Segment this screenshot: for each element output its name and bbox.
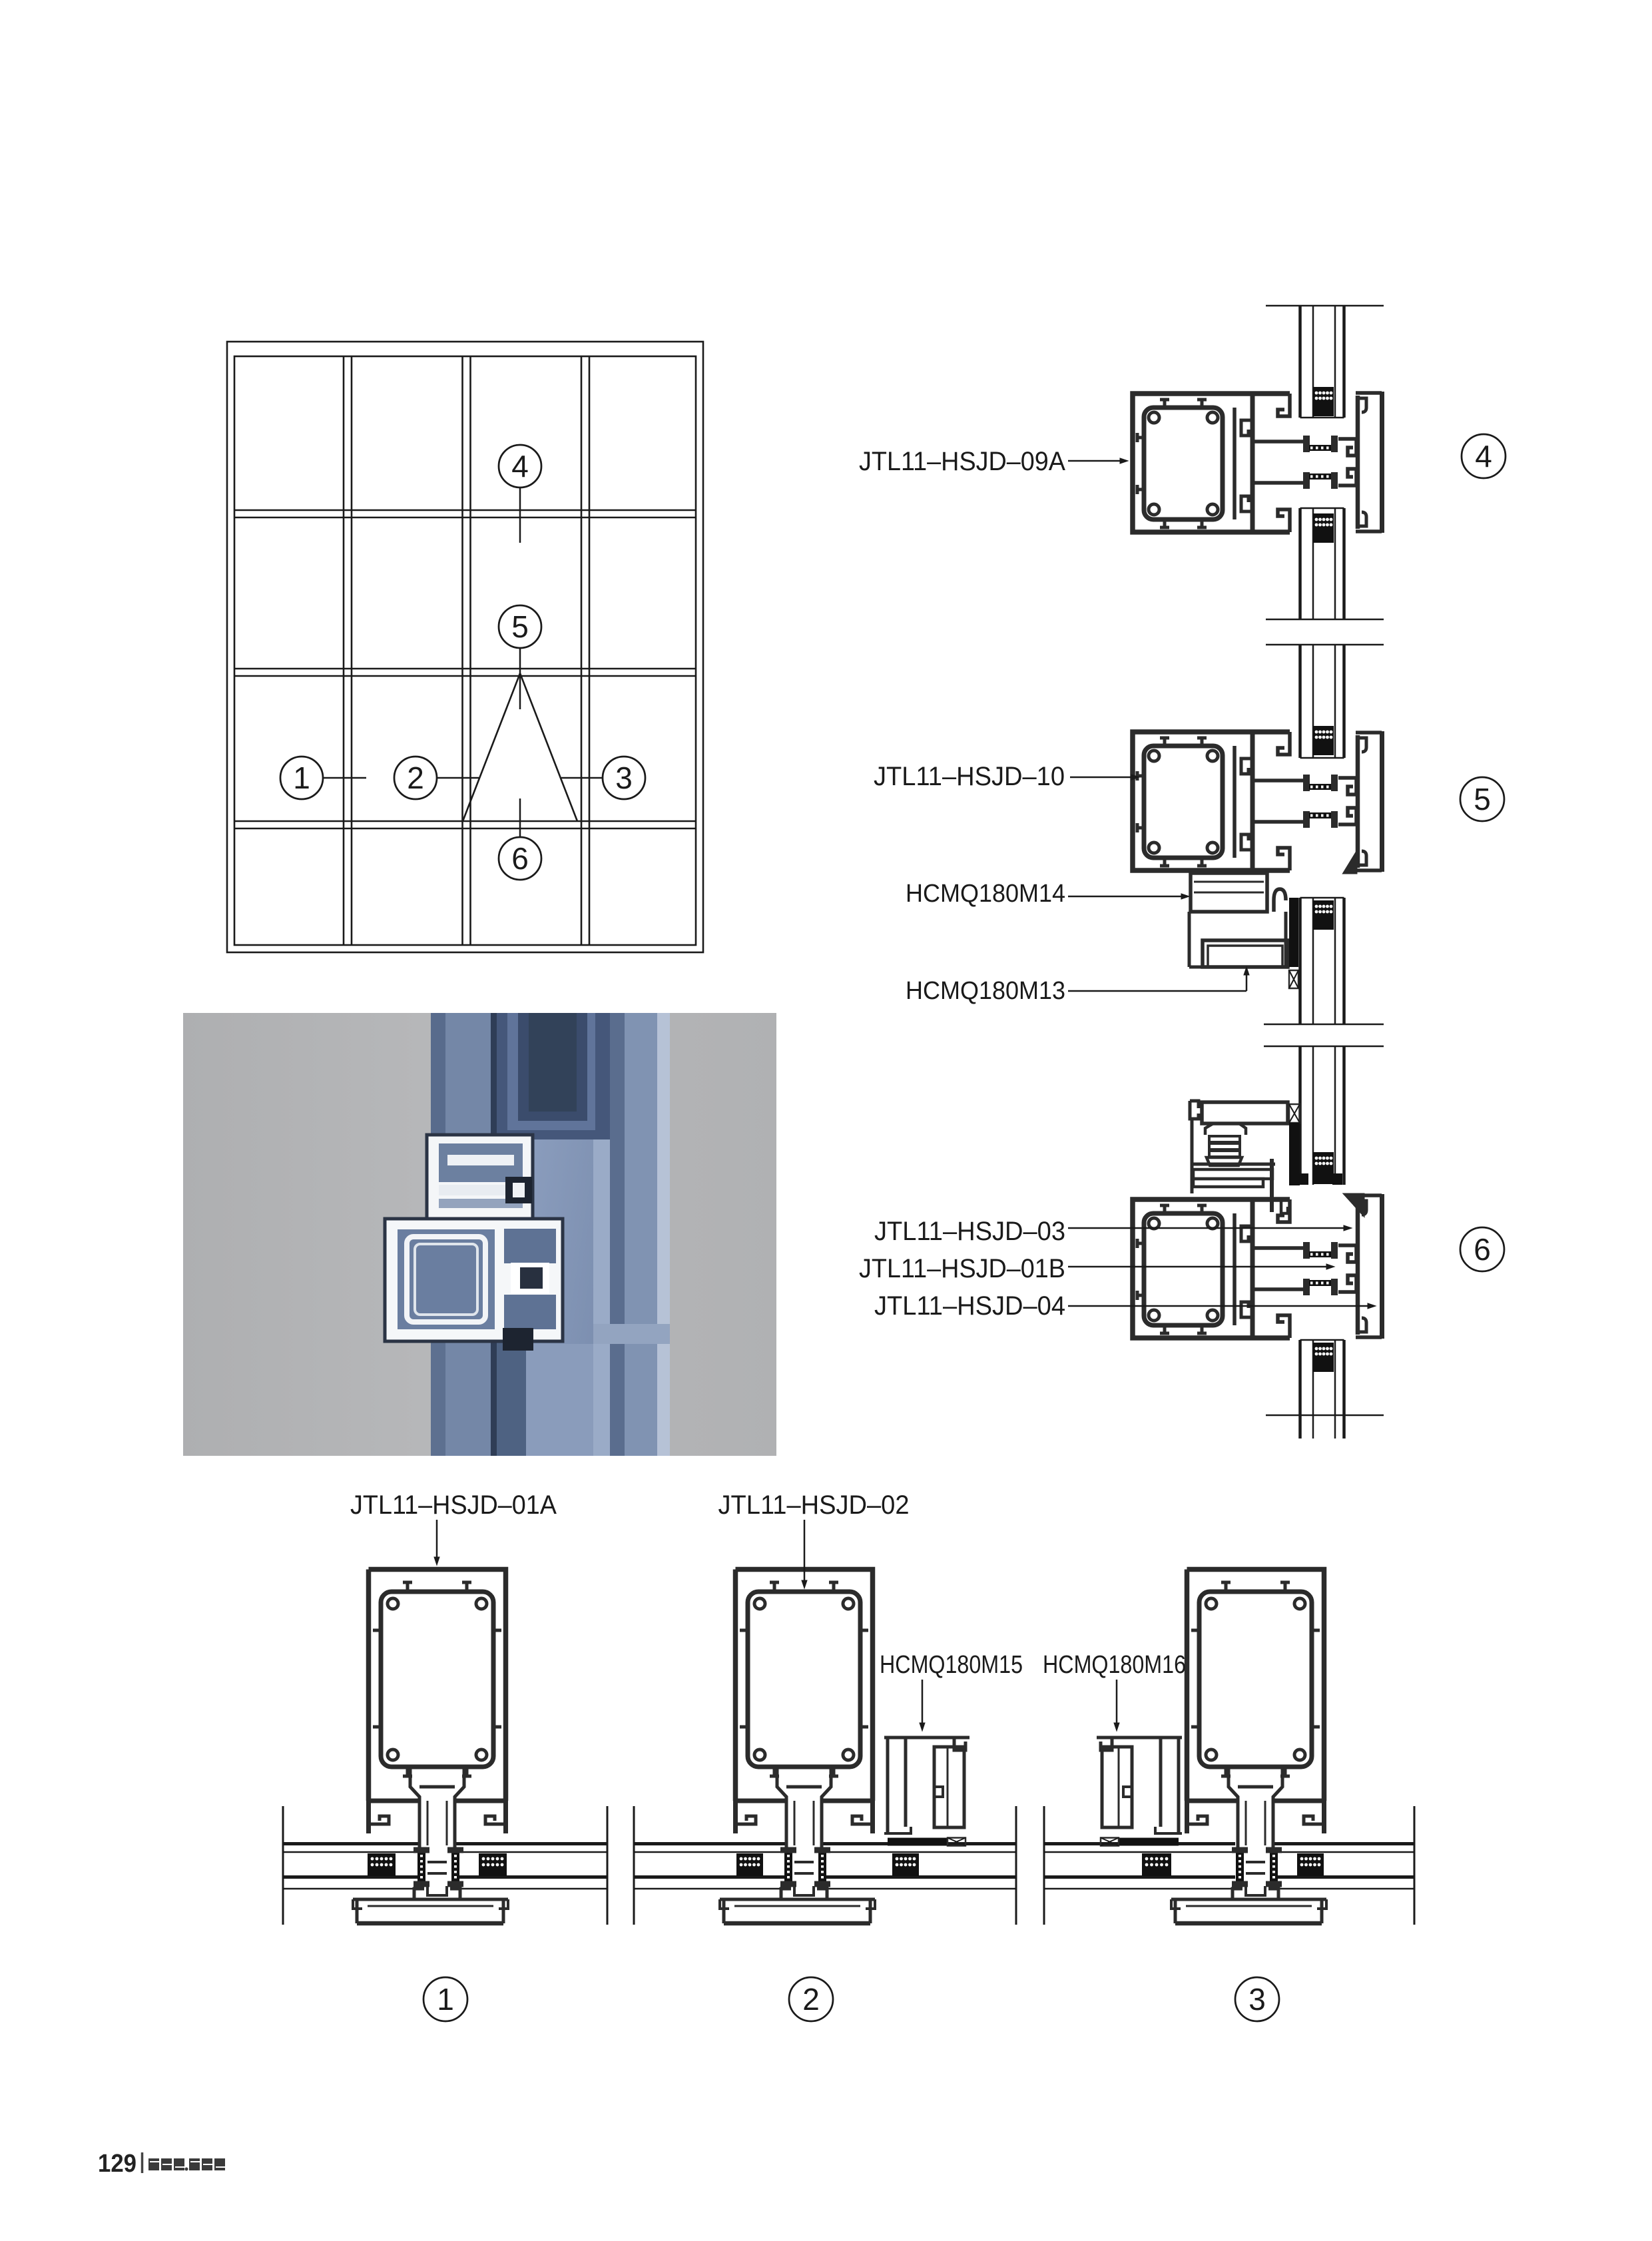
svg-text:JTL11–HSJD–10: JTL11–HSJD–10: [874, 762, 1065, 791]
svg-text:3: 3: [615, 761, 633, 795]
svg-text:JTL11–HSJD–01A: JTL11–HSJD–01A: [350, 1490, 557, 1520]
svg-text:HCMQ180M14: HCMQ180M14: [906, 880, 1065, 908]
svg-text:HCMQ180M16: HCMQ180M16: [1043, 1651, 1186, 1679]
svg-text:2: 2: [407, 761, 424, 795]
svg-text:4: 4: [1475, 439, 1492, 474]
svg-text:129: 129: [98, 2150, 137, 2178]
svg-text:1: 1: [437, 1982, 454, 2017]
svg-text:HCMQ180M15: HCMQ180M15: [880, 1651, 1023, 1679]
svg-text:5: 5: [511, 609, 529, 644]
svg-text:JTL11–HSJD–09A: JTL11–HSJD–09A: [859, 447, 1065, 476]
svg-text:6: 6: [1474, 1232, 1491, 1267]
svg-text:HCMQ180M13: HCMQ180M13: [906, 977, 1065, 1005]
svg-text:JTL11–HSJD–03: JTL11–HSJD–03: [874, 1217, 1065, 1246]
svg-text:JTL11–HSJD–04: JTL11–HSJD–04: [874, 1291, 1065, 1321]
svg-text:1: 1: [293, 761, 310, 795]
svg-text:6: 6: [511, 841, 529, 876]
svg-text:3: 3: [1248, 1982, 1266, 2017]
svg-text:JTL11–HSJD–01B: JTL11–HSJD–01B: [859, 1254, 1065, 1283]
svg-text:JTL11–HSJD–02: JTL11–HSJD–02: [718, 1490, 910, 1520]
svg-text:2: 2: [802, 1982, 820, 2017]
svg-text:5: 5: [1474, 782, 1491, 816]
svg-text:4: 4: [511, 449, 529, 483]
